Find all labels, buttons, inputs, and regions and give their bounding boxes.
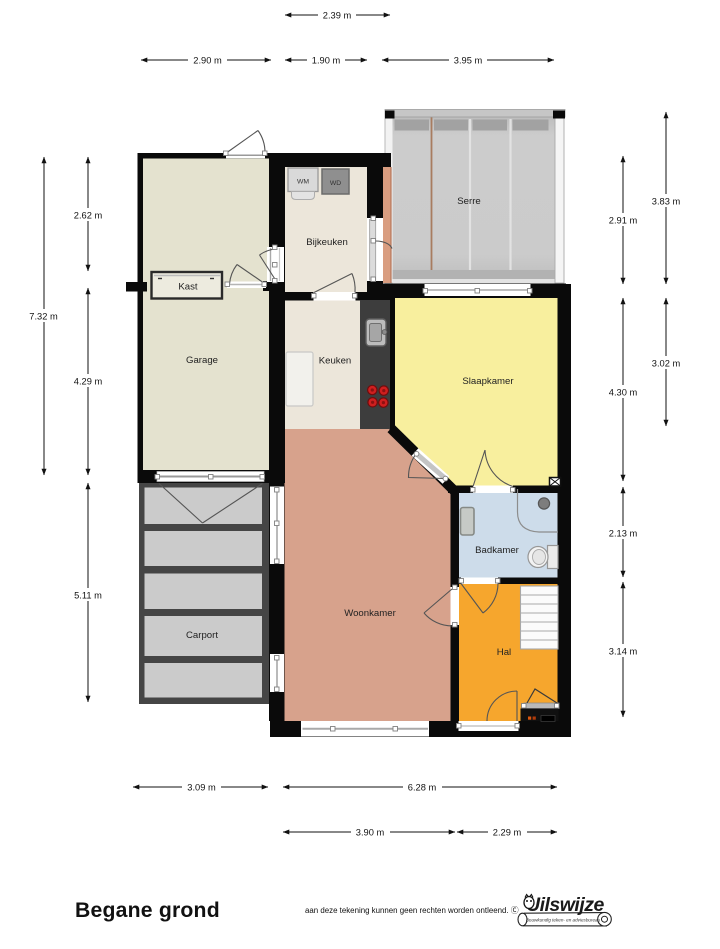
svg-text:2.13 m: 2.13 m	[609, 529, 638, 539]
svg-text:Garage: Garage	[186, 355, 218, 366]
svg-text:Badkamer: Badkamer	[475, 545, 520, 556]
svg-text:6.28 m: 6.28 m	[408, 783, 437, 793]
svg-text:4.30 m: 4.30 m	[609, 388, 638, 398]
svg-text:Kast: Kast	[178, 282, 198, 293]
svg-text:3.83 m: 3.83 m	[652, 197, 681, 207]
svg-text:4.29 m: 4.29 m	[74, 377, 103, 387]
svg-text:2.91 m: 2.91 m	[609, 216, 638, 226]
svg-text:Begane grond: Begane grond	[75, 899, 220, 922]
svg-text:WD: WD	[330, 180, 341, 187]
svg-text:5.11 m: 5.11 m	[74, 591, 102, 601]
svg-text:aan deze tekening kunnen geen: aan deze tekening kunnen geen rechten wo…	[305, 906, 519, 915]
svg-text:Hal: Hal	[497, 647, 511, 658]
svg-text:2.39 m: 2.39 m	[323, 11, 352, 21]
svg-text:WM: WM	[297, 179, 309, 186]
svg-text:3.02 m: 3.02 m	[652, 359, 681, 369]
svg-text:2.29 m: 2.29 m	[493, 828, 522, 838]
svg-text:Bijkeuken: Bijkeuken	[306, 237, 348, 248]
svg-text:3.95 m: 3.95 m	[454, 56, 483, 66]
svg-text:1.90 m: 1.90 m	[312, 56, 341, 66]
svg-text:Woonkamer: Woonkamer	[344, 608, 396, 619]
svg-text:Keuken: Keuken	[319, 356, 352, 367]
svg-text:Carport: Carport	[186, 630, 218, 641]
svg-text:3.09 m: 3.09 m	[187, 783, 216, 793]
svg-text:2.62 m: 2.62 m	[74, 211, 103, 221]
svg-text:Slaapkamer: Slaapkamer	[462, 376, 514, 387]
svg-text:Bouwkundig teken- en adviesbur: Bouwkundig teken- en adviesbureau	[526, 918, 601, 923]
svg-text:7.32 m: 7.32 m	[29, 312, 58, 322]
svg-text:Serre: Serre	[457, 196, 480, 207]
svg-text:3.14 m: 3.14 m	[609, 647, 638, 657]
svg-text:3.90 m: 3.90 m	[356, 828, 385, 838]
svg-text:2.90 m: 2.90 m	[193, 56, 222, 66]
